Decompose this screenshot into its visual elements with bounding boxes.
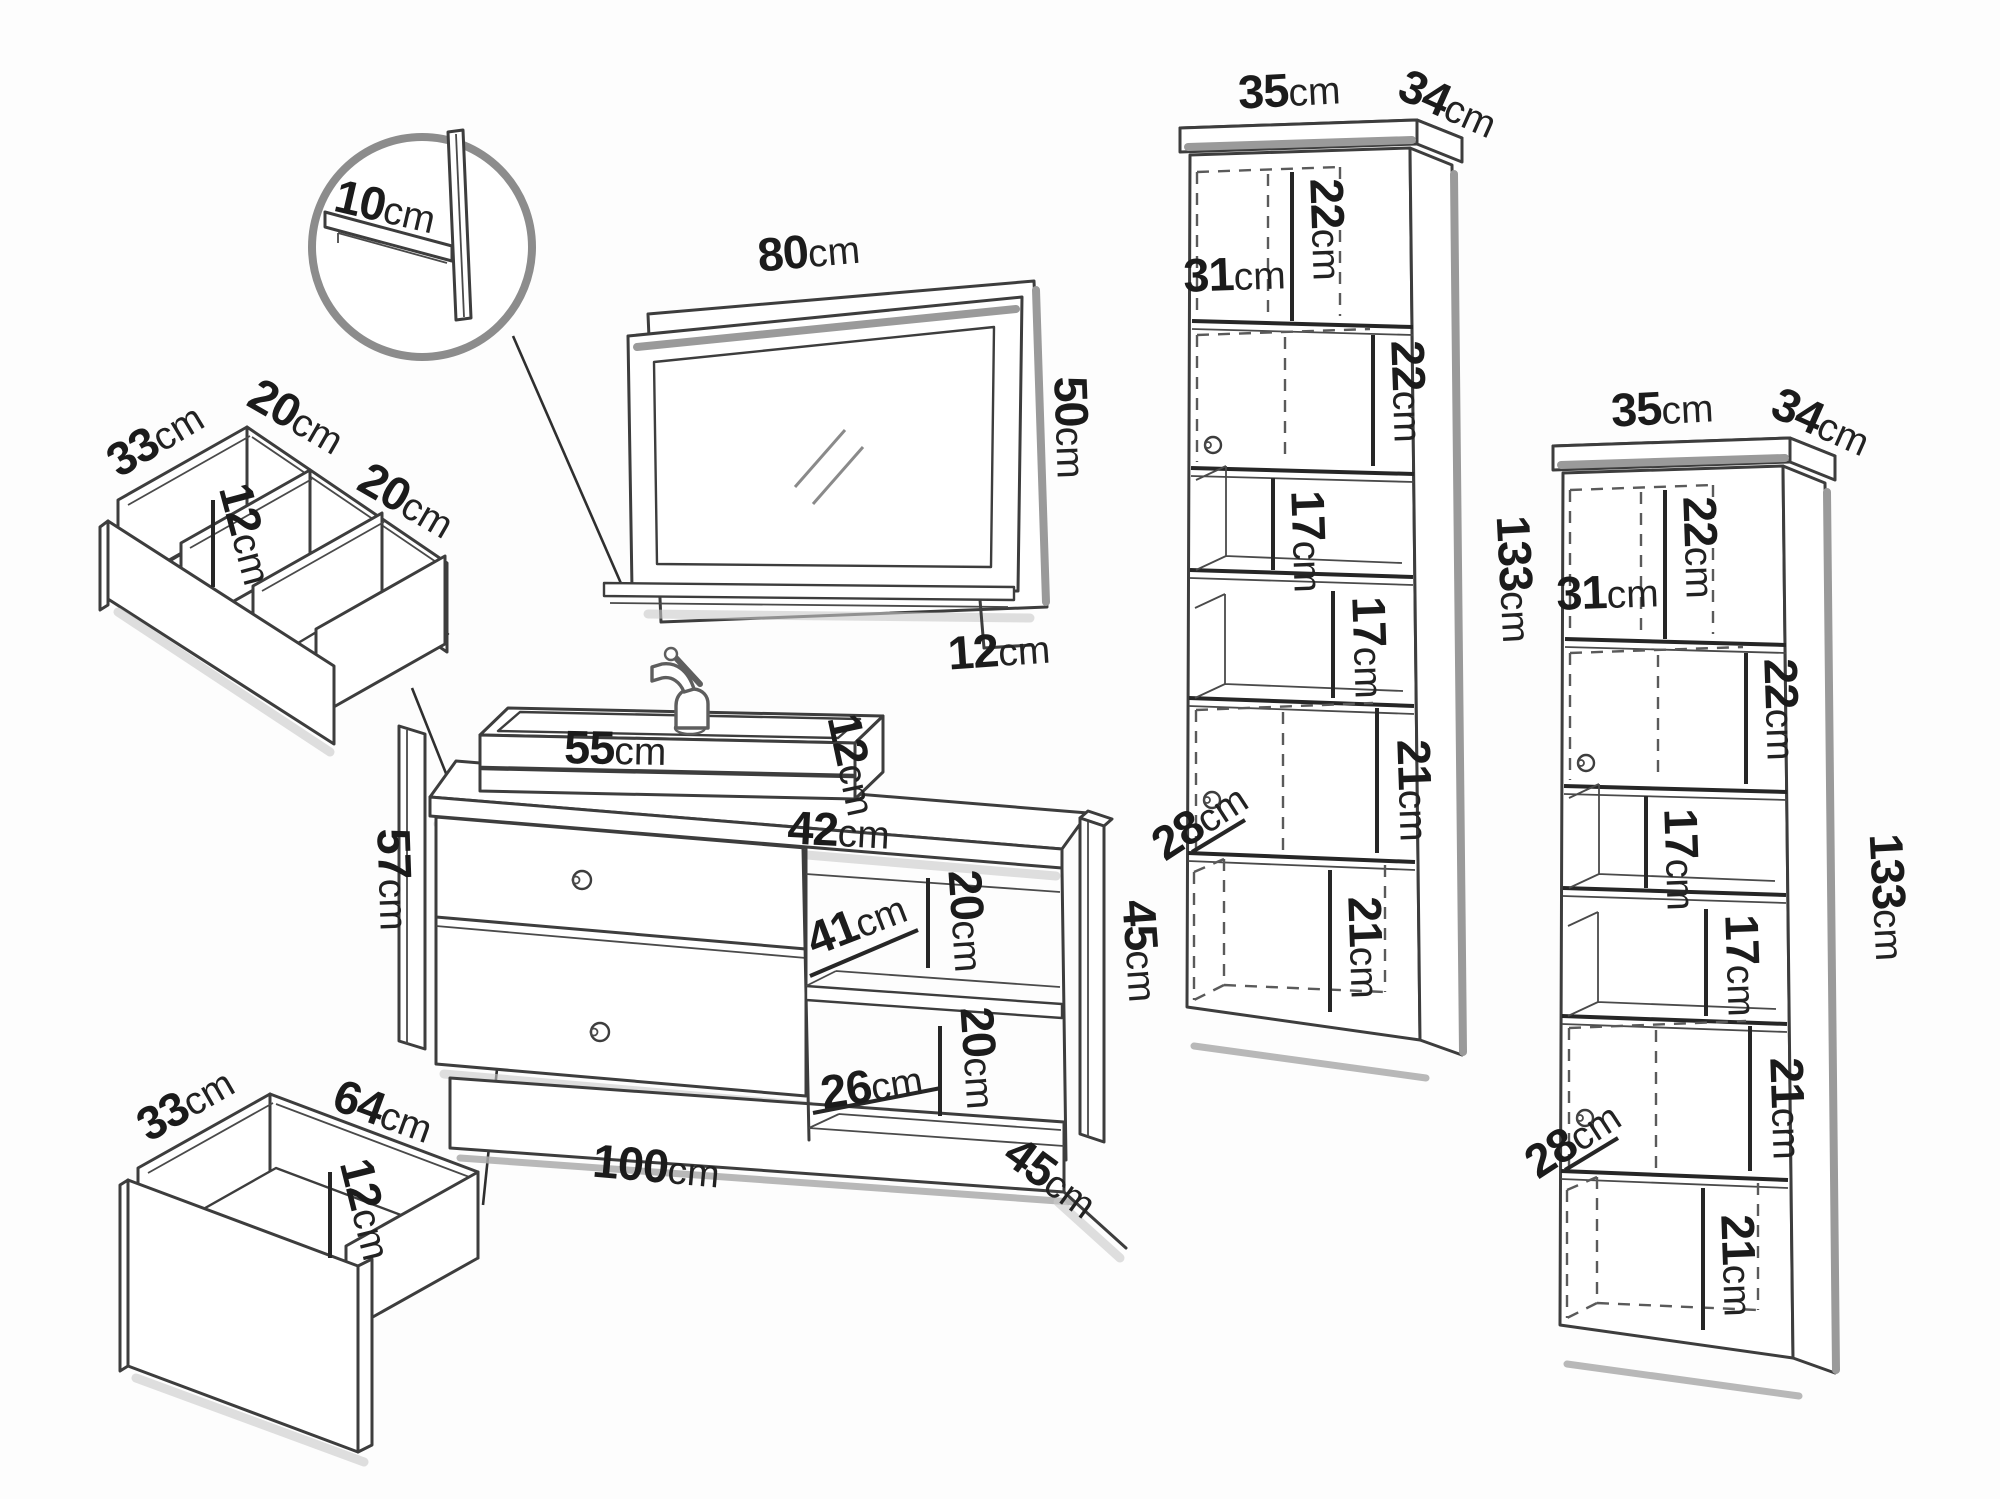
dim-side-panel-height: 45cm (1112, 898, 1172, 1004)
dim-value: 17 (1715, 913, 1770, 965)
dim-unit: cm (997, 629, 1052, 676)
dim-unit: cm (1718, 964, 1763, 1017)
dim-value: 17 (1281, 489, 1336, 541)
dim-unit: cm (1390, 789, 1435, 842)
dim-unit: cm (1233, 254, 1286, 299)
dim-niche-depth: 41cm (799, 880, 913, 966)
dim-value: 22 (1754, 657, 1809, 709)
mirror-bottom-shadow (648, 614, 1030, 618)
dim-niche-lower-height: 20cm (950, 1005, 1010, 1111)
dim-value: 22 (1300, 177, 1355, 229)
niche-shelf-back (806, 971, 1060, 987)
dim-value: 21 (1760, 1056, 1815, 1108)
dim-value: 22 (1381, 339, 1436, 391)
vanity-right-panel (1080, 818, 1104, 1142)
dim-cab1-width: 35cm (1237, 60, 1342, 118)
dim-unit: cm (1384, 390, 1429, 443)
dim-unit: cm (1865, 908, 1911, 962)
dim-value: 35 (1610, 381, 1663, 437)
dim-value: 31 (1182, 247, 1234, 302)
dim-unit: cm (1117, 949, 1164, 1004)
dim-mirror-height: 50cm (1044, 375, 1101, 479)
dim-value: 26 (817, 1059, 875, 1119)
dim-unit: cm (837, 812, 891, 858)
dim-unit: cm (868, 1059, 926, 1110)
dim-unit: cm (1341, 946, 1386, 999)
detail-leader-line (513, 336, 623, 588)
vanity-drawer-front (436, 817, 806, 1096)
dim-unit: cm (614, 730, 667, 774)
dim-unit: cm (1047, 426, 1092, 479)
drawer-front-right-end (358, 1259, 372, 1452)
dim-value: 21 (1338, 895, 1393, 947)
dim-value: 42 (786, 800, 839, 856)
dim-value: 17 (1654, 807, 1709, 859)
dim-mirror-width: 80cm (755, 220, 862, 282)
lower-drawer: 33cm 64cm 12cm (120, 1040, 500, 1462)
dim-value: 20 (950, 1005, 1006, 1059)
dim-value: 57 (367, 827, 422, 879)
dim-value: 21 (1711, 1213, 1766, 1265)
mirror-glass (654, 327, 994, 567)
dim-unit: cm (1287, 69, 1341, 115)
dim-value: 55 (564, 720, 615, 774)
dim-unit: cm (1757, 708, 1802, 761)
dim-value: 50 (1044, 375, 1099, 427)
dim-value: 80 (755, 224, 810, 281)
dim-unit: cm (1714, 1264, 1759, 1317)
dim-value: 22 (1673, 495, 1728, 547)
dim-unit: cm (1284, 540, 1329, 593)
tall-cabinet-right: 35cm 34cm 22cm 31cm 22cm 17cm 17cm 21cm … (1515, 376, 1920, 1396)
dim-value: 20 (938, 868, 994, 922)
dim-value: 100 (591, 1134, 671, 1193)
mirror: 80cm 50cm 12cm (604, 220, 1101, 680)
dim-unit: cm (806, 229, 862, 276)
dim-unit: cm (943, 919, 990, 974)
dim-cab2-width: 35cm (1610, 378, 1715, 436)
furniture-dimension-diagram: 10cm 80cm 50cm 12cm (0, 0, 2000, 1499)
dim-value: 21 (1387, 738, 1442, 790)
dim-unit: cm (1606, 572, 1659, 617)
dim-unit: cm (666, 1149, 722, 1196)
dim-value: 31 (1555, 565, 1607, 620)
dim-unit: cm (1492, 590, 1538, 644)
dim-value: 133 (1860, 832, 1917, 910)
dim-cab2-total-height: 133cm (1860, 832, 1920, 962)
dim-unit: cm (1657, 858, 1702, 911)
dim-unit: cm (1763, 1107, 1808, 1160)
niche-shelf (806, 986, 1062, 1018)
dim-unit: cm (1676, 546, 1721, 599)
tall-cabinet-left: 35cm 34cm 22cm 31cm 22cm 17cm 17cm 21cm … (1142, 58, 1547, 1078)
dim-cab1-total-height: 133cm (1487, 514, 1547, 644)
dim-value: 17 (1342, 595, 1397, 647)
dim-niche-lower-width: 26cm (817, 1051, 926, 1119)
dim-mirror-shelf-depth: 12cm (946, 620, 1052, 680)
dim-unit: cm (370, 878, 415, 931)
dim-value: 133 (1487, 514, 1544, 592)
dim-niche-upper-height: 20cm (938, 868, 998, 974)
dim-unit: cm (1303, 228, 1348, 281)
dim-value: 45 (1112, 898, 1168, 952)
dim-value: 12 (946, 623, 1000, 679)
dim-unit: cm (1345, 646, 1390, 699)
dim-value: 35 (1237, 63, 1290, 119)
diagram-canvas: 10cm 80cm 50cm 12cm (0, 0, 2000, 1499)
dim-unit: cm (1660, 387, 1714, 433)
mirror-shelf (604, 583, 1014, 600)
dim-unit: cm (955, 1056, 1002, 1111)
